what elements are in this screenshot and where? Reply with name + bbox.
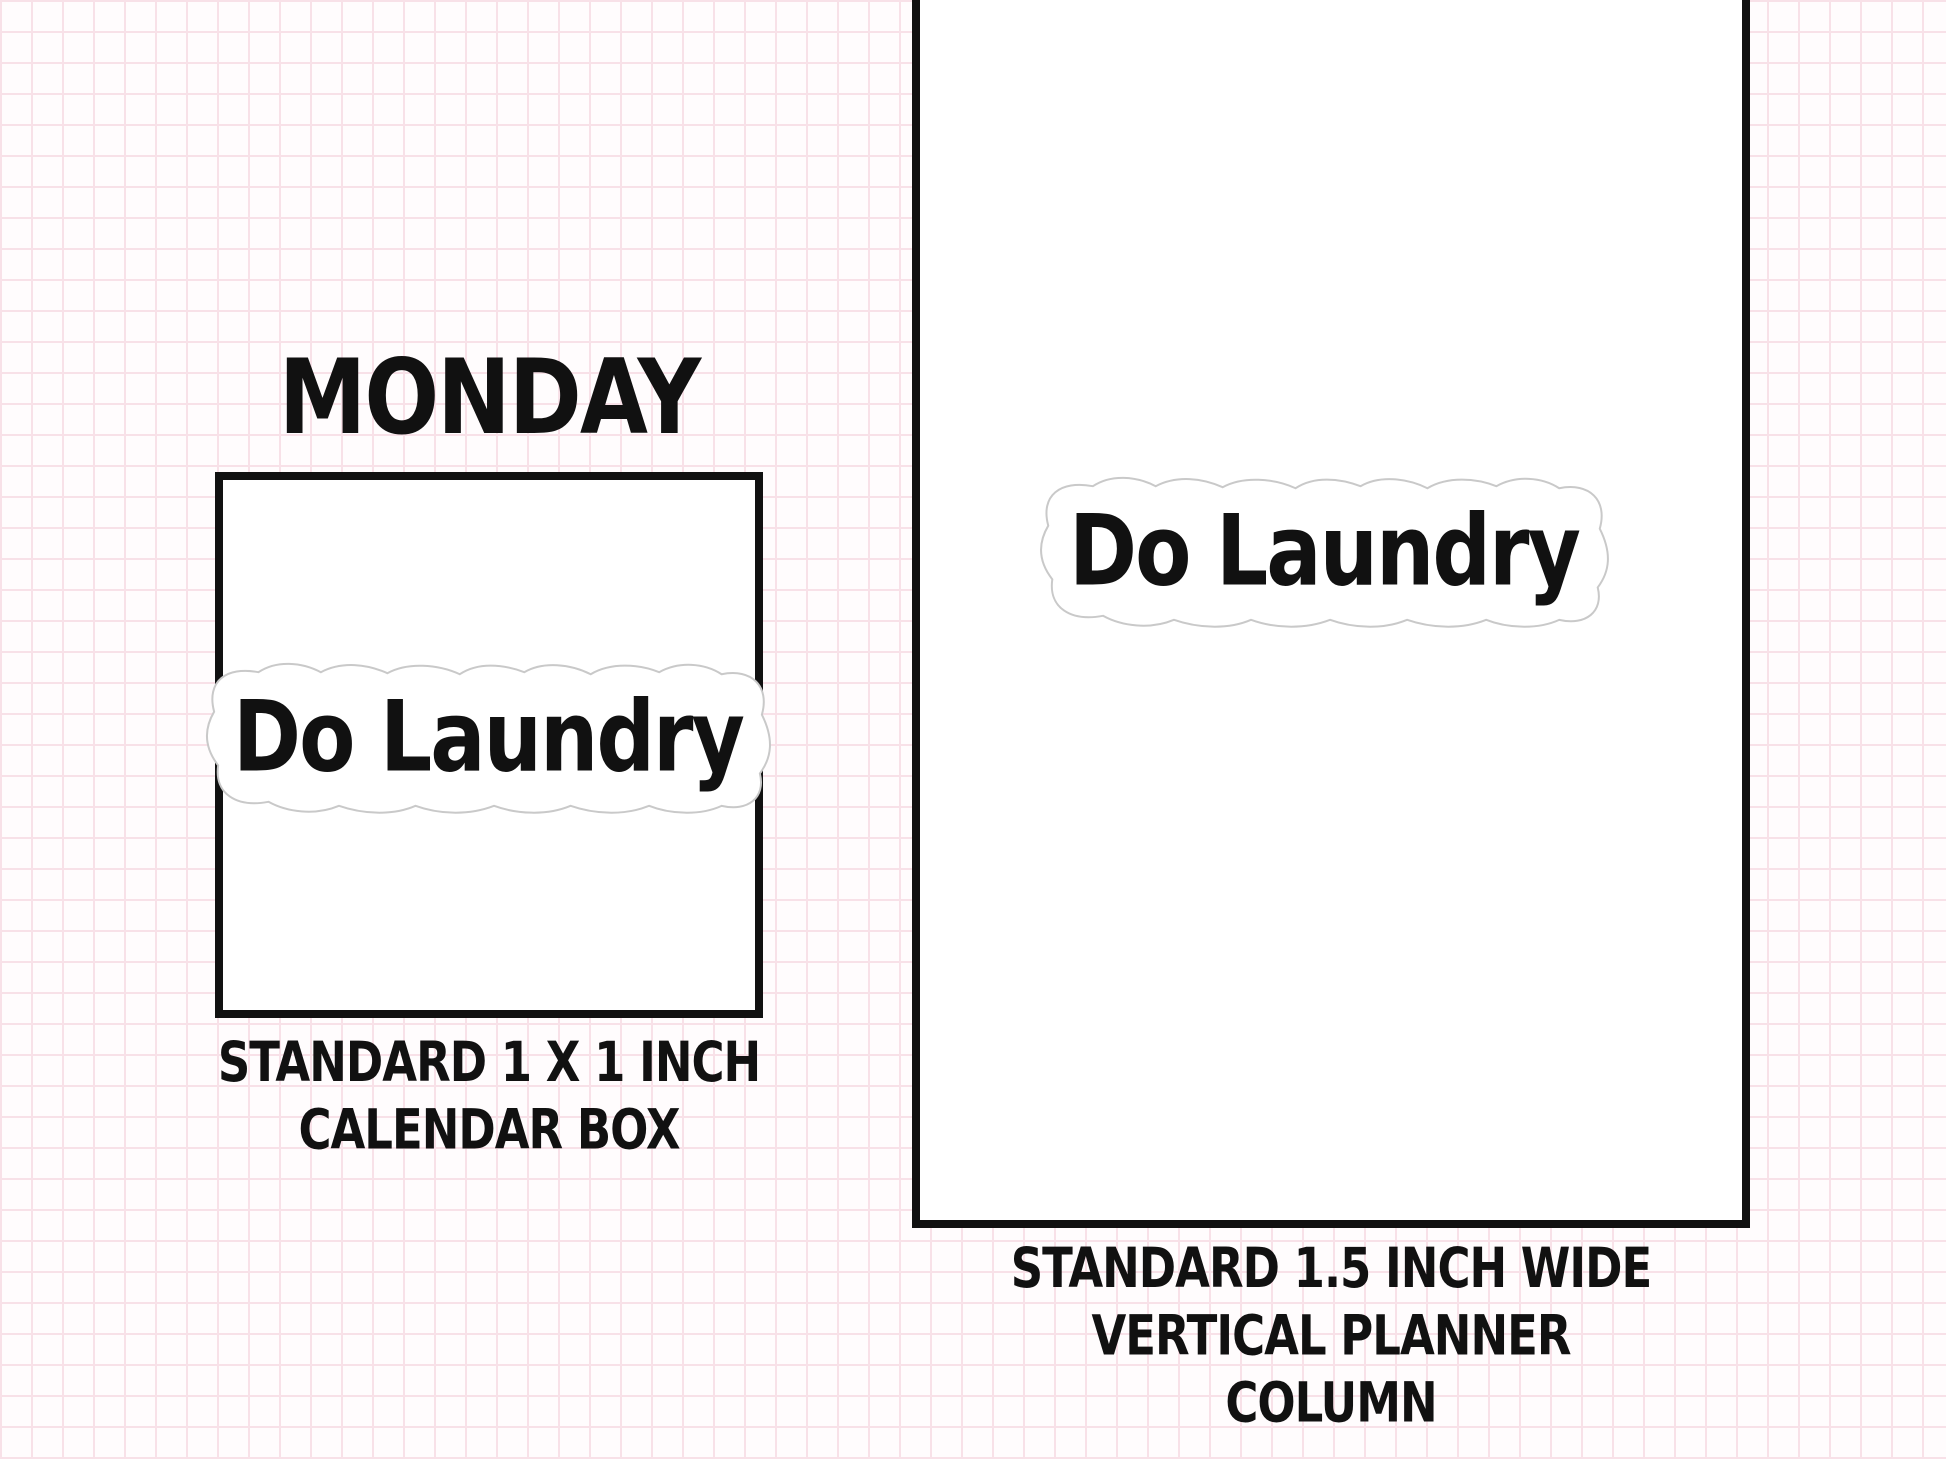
caption-line: STANDARD 1 X 1 INCH bbox=[139, 1030, 839, 1097]
sticker-text: Do Laundry bbox=[233, 680, 743, 794]
calendar-box-caption: STANDARD 1 X 1 INCH CALENDAR BOX bbox=[139, 1030, 839, 1164]
day-label: MONDAY bbox=[215, 336, 763, 458]
sticker-text: Do Laundry bbox=[1069, 494, 1579, 608]
do-laundry-sticker-column: Do Laundry bbox=[1030, 470, 1618, 632]
planner-column-caption: STANDARD 1.5 INCH WIDE VERTICAL PLANNER … bbox=[981, 1236, 1681, 1437]
caption-line: CALENDAR BOX bbox=[139, 1097, 839, 1164]
caption-line: STANDARD 1.5 INCH WIDE bbox=[981, 1236, 1681, 1303]
caption-line: VERTICAL PLANNER COLUMN bbox=[981, 1303, 1681, 1437]
planner-sticker-mockup: MONDAY Do Laundry STANDARD 1 X 1 INCH CA… bbox=[0, 0, 1946, 1459]
do-laundry-sticker-calendar: Do Laundry bbox=[196, 656, 780, 818]
